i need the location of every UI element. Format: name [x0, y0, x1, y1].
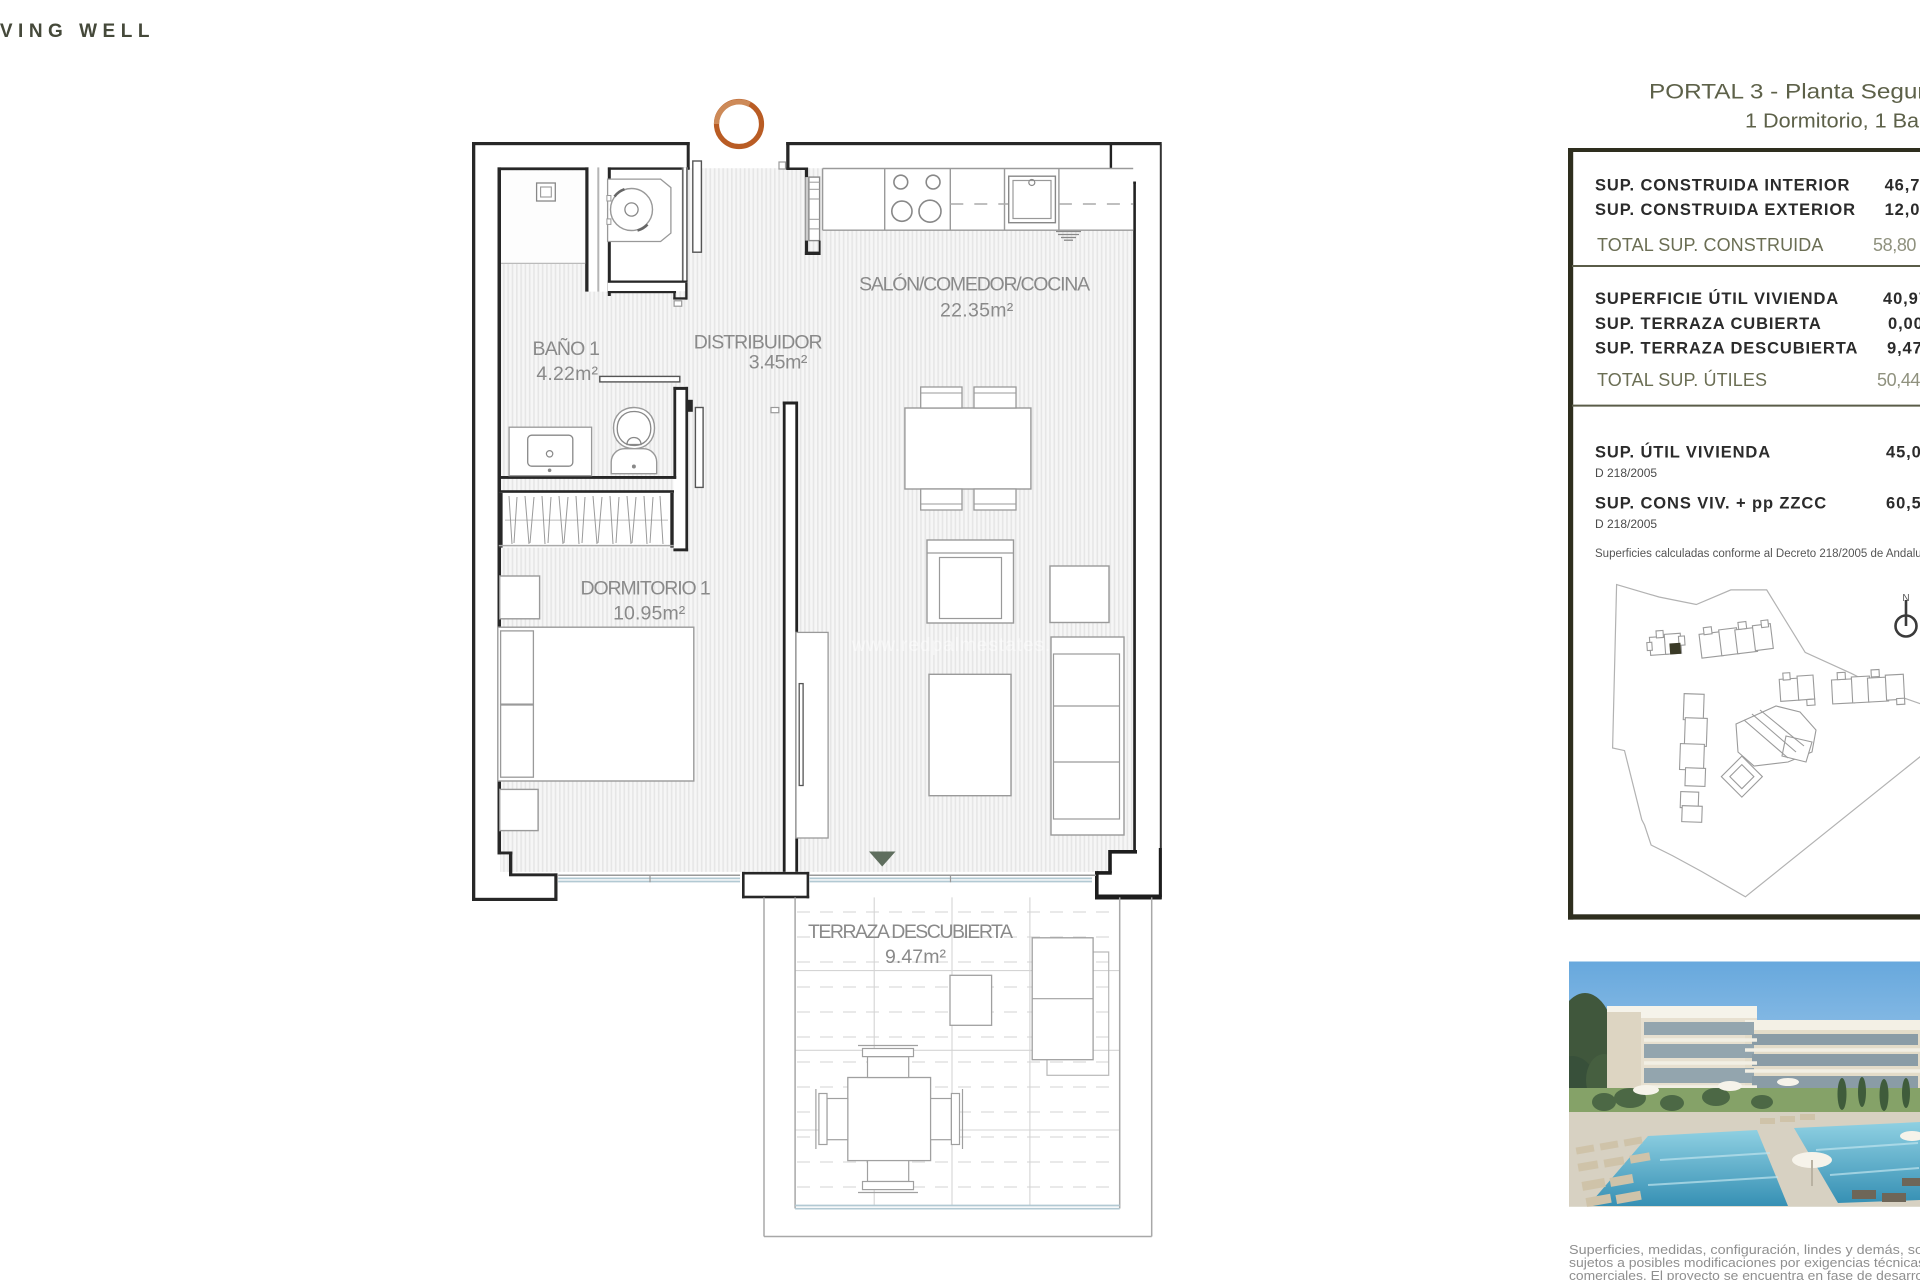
svg-text:9.47m²: 9.47m² [885, 946, 947, 968]
svg-text:DORMITORIO 1: DORMITORIO 1 [581, 577, 711, 599]
svg-text:0,00 m²: 0,00 m² [1888, 315, 1920, 333]
svg-text:SUP. TERRAZA DESCUBIERTA: SUP. TERRAZA DESCUBIERTA [1595, 339, 1858, 357]
svg-text:12,04 m²: 12,04 m² [1885, 201, 1920, 219]
svg-text:45,02 m²: 45,02 m² [1886, 443, 1920, 461]
svg-text:SALÓN/COMEDOR/COCINA: SALÓN/COMEDOR/COCINA [859, 273, 1090, 296]
svg-text:60,55 m²: 60,55 m² [1886, 494, 1920, 512]
svg-text:LIVING WELL: LIVING WELL [0, 21, 155, 42]
svg-text:22.35m²: 22.35m² [940, 300, 1014, 322]
svg-text:TERRAZA DESCUBIERTA: TERRAZA DESCUBIERTA [808, 921, 1013, 943]
svg-text:D 218/2005: D 218/2005 [1595, 517, 1657, 531]
svg-text:N: N [1902, 593, 1909, 604]
svg-text:DISTRIBUIDOR: DISTRIBUIDOR [694, 332, 823, 354]
svg-text:D 218/2005: D 218/2005 [1595, 466, 1657, 480]
svg-text:BAÑO 1: BAÑO 1 [533, 336, 601, 360]
svg-text:10.95m²: 10.95m² [613, 603, 686, 625]
svg-text:4.22m²: 4.22m² [536, 363, 598, 385]
svg-text:www.redpalmestates.com: www.redpalmestates.com [851, 635, 1090, 656]
svg-text:50,44 m²: 50,44 m² [1877, 370, 1920, 390]
svg-text:46,76 m²: 46,76 m² [1885, 176, 1920, 194]
svg-text:SUP. CONSTRUIDA INTERIOR: SUP. CONSTRUIDA INTERIOR [1595, 176, 1850, 194]
svg-text:SUP. ÚTIL VIVIENDA: SUP. ÚTIL VIVIENDA [1595, 442, 1771, 461]
svg-text:PORTAL 3 - Planta Segunda: PORTAL 3 - Planta Segunda [1649, 81, 1920, 104]
svg-text:SUP. CONS VIV. + pp ZZCC: SUP. CONS VIV. + pp ZZCC [1595, 494, 1827, 512]
svg-text:Superficies calculadas conform: Superficies calculadas conforme al Decre… [1595, 548, 1920, 560]
svg-text:1 Dormitorio, 1 Baño: 1 Dormitorio, 1 Baño [1745, 111, 1920, 133]
svg-text:3.45m²: 3.45m² [749, 352, 808, 374]
svg-text:58,80 m²: 58,80 m² [1873, 235, 1920, 255]
svg-text:comerciales. El proyecto se en: comerciales. El proyecto se encuentra en… [1569, 1268, 1920, 1280]
svg-text:TOTAL SUP. CONSTRUIDA: TOTAL SUP. CONSTRUIDA [1597, 235, 1823, 255]
svg-text:9,47 m²: 9,47 m² [1887, 339, 1920, 357]
svg-text:SUP. CONSTRUIDA EXTERIOR: SUP. CONSTRUIDA EXTERIOR [1595, 201, 1856, 219]
svg-text:SUP. TERRAZA CUBIERTA: SUP. TERRAZA CUBIERTA [1595, 315, 1822, 333]
svg-text:TOTAL SUP. ÚTILES: TOTAL SUP. ÚTILES [1597, 369, 1767, 390]
svg-text:40,97 m²: 40,97 m² [1883, 290, 1920, 308]
svg-text:SUPERFICIE ÚTIL VIVIENDA: SUPERFICIE ÚTIL VIVIENDA [1595, 289, 1839, 308]
